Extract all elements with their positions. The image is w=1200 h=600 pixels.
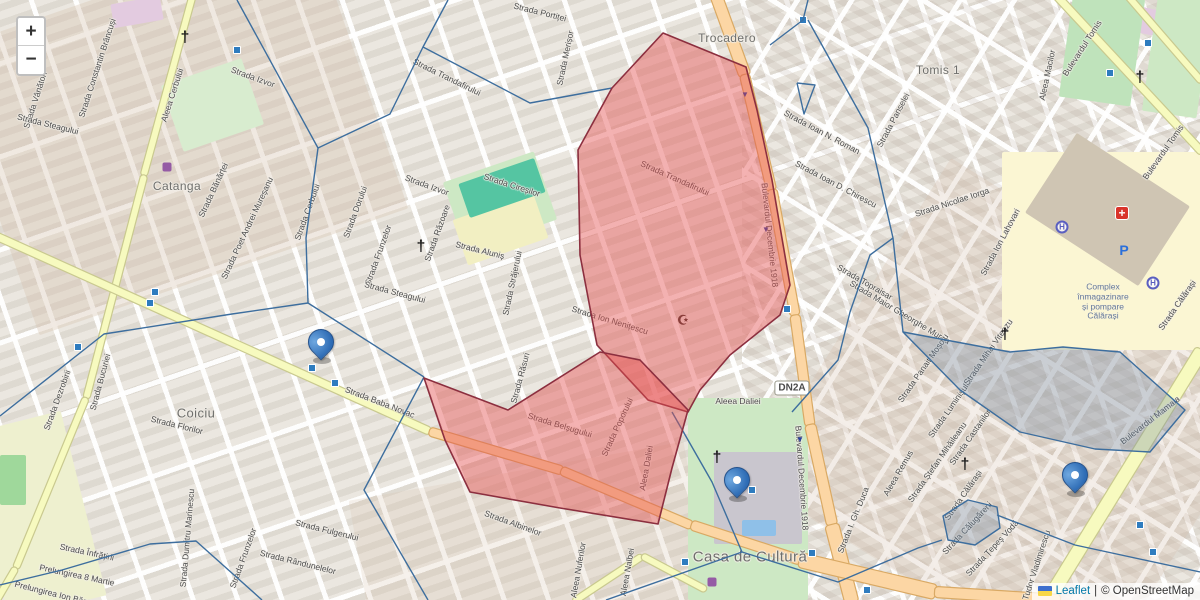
arrow-icon: ▼ (762, 226, 770, 234)
bus-stop-icon (1136, 521, 1144, 529)
place-label: Coiciu (177, 406, 216, 421)
bus-stop-icon (331, 379, 339, 387)
bus-stop-icon (748, 486, 756, 494)
church-icon: † (417, 239, 426, 255)
arrow-icon: ▼ (796, 436, 804, 444)
marker-pin-dot (1071, 471, 1079, 479)
helipad-icon: H (1056, 221, 1069, 234)
osm-credit-link[interactable]: © OpenStreetMap (1101, 585, 1194, 597)
bus-stop-icon (233, 46, 241, 54)
mosque-icon: ☪ (677, 314, 689, 327)
ukraine-flag-icon (1038, 586, 1052, 596)
street-label: Aleea Daliei (715, 396, 760, 406)
shop-icon (163, 163, 172, 172)
arrow-icon: ▼ (741, 91, 749, 99)
bus-stop-icon (74, 343, 82, 351)
place-label: Catanga (153, 179, 201, 193)
attribution-bar: Leaflet | © OpenStreetMap (1032, 583, 1200, 600)
attribution-separator: | (1094, 585, 1097, 597)
zoom-in-button[interactable]: + (18, 18, 44, 46)
place-label: Trocadero (698, 31, 756, 45)
map-canvas[interactable]: + − Leaflet | © OpenStreetMap Strada Izv… (0, 0, 1200, 600)
place-label: Casa de Cultură (693, 549, 807, 566)
bus-stop-icon (1149, 548, 1157, 556)
bus-stop-icon (146, 299, 154, 307)
church-icon: † (961, 457, 970, 473)
shop-icon (708, 578, 717, 587)
parking-icon: P (1119, 243, 1128, 257)
road-shield-dn2a: DN2A (774, 381, 809, 396)
leaflet-link[interactable]: Leaflet (1056, 585, 1091, 597)
marker-pin-dot (733, 476, 741, 484)
hospital-icon: + (1115, 206, 1129, 220)
bus-stop-icon (1106, 69, 1114, 77)
bus-stop-icon (783, 305, 791, 313)
church-icon: † (181, 30, 190, 46)
place-label: Tomis 1 (916, 63, 960, 77)
church-icon: † (713, 450, 722, 466)
bus-stop-icon (681, 558, 689, 566)
bus-stop-icon (799, 16, 807, 24)
bus-stop-icon (308, 364, 316, 372)
bus-stop-icon (863, 586, 871, 594)
zoom-control: + − (16, 16, 46, 76)
church-icon: † (1136, 70, 1145, 86)
bus-stop-icon (808, 549, 816, 557)
area-green-sw-patch (0, 455, 26, 505)
church-icon: † (1001, 327, 1010, 343)
zoom-out-button[interactable]: − (18, 46, 44, 74)
landuse-label: Complexînmagazinareși pompareCălărași (1077, 282, 1129, 321)
helipad-icon: H (1147, 277, 1160, 290)
area-casa-pool (742, 520, 776, 536)
bus-stop-icon (151, 288, 159, 296)
bus-stop-icon (1144, 39, 1152, 47)
marker-pin-dot (317, 338, 325, 346)
